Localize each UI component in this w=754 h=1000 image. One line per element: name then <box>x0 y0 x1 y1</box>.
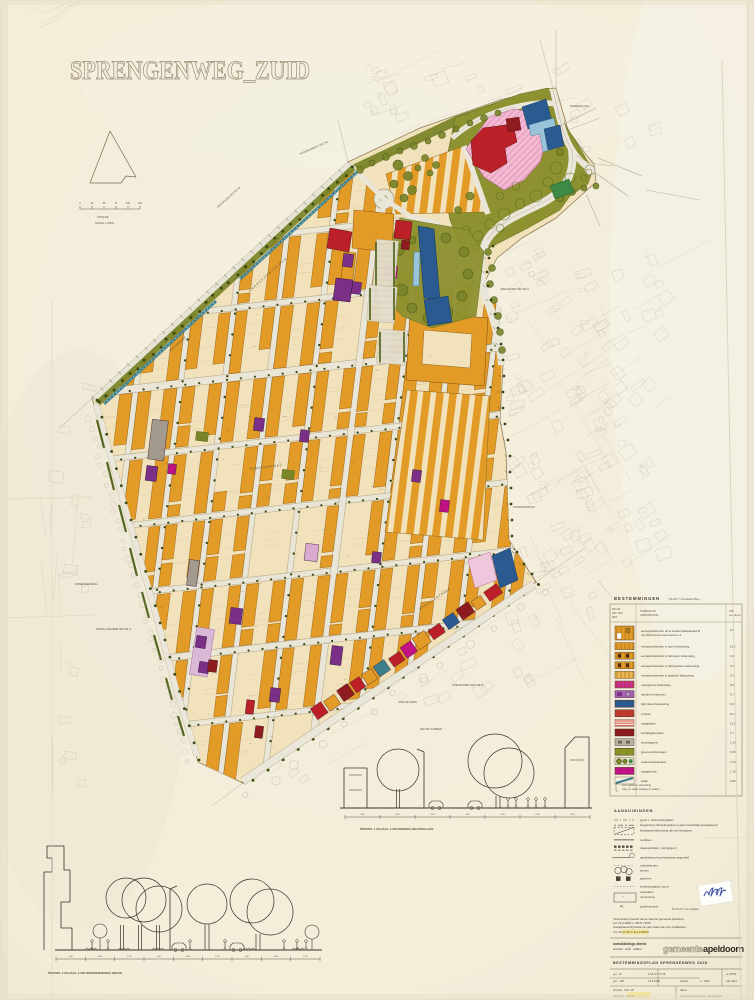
svg-text:SECTIE NUMMER: SECTIE NUMMER <box>420 727 442 731</box>
svg-text:SPRENGENWEG_ZUID: SPRENGENWEG_ZUID <box>70 56 310 85</box>
svg-text:0.46: 0.46 <box>730 779 736 783</box>
svg-text:eensgezinshuizen in half open: eensgezinshuizen in half open bebouwing <box>641 654 695 658</box>
svg-text:ORANJE PLEIN: ORANJE PLEIN <box>398 700 417 704</box>
svg-text:~: ~ <box>622 895 624 899</box>
svg-text:datum: datum <box>680 988 687 992</box>
svg-text:AANDUIDINGEN: AANDUIDINGEN <box>614 809 653 813</box>
svg-text:ZIE LID: ZIE LID <box>612 608 620 611</box>
svg-text:met bijbehorende aanbouwsels e: met bijbehorende aanbouwsels e.d. <box>641 633 682 637</box>
svg-text:WET: WET <box>612 616 618 619</box>
svg-text:*behorende bij besluit van de: *behorende bij besluit van de raad der g… <box>613 917 684 921</box>
svg-text:gez : vdB: gez : vdB <box>613 979 624 983</box>
svg-text:handel en kantoren: handel en kantoren <box>641 693 666 697</box>
svg-text:eensgezinshuizen in gesloten b: eensgezinshuizen in gesloten bebouwing <box>641 673 694 677</box>
svg-text:bijzondere bebouwing: bijzondere bebouwing <box>641 702 670 706</box>
svg-text:aansluiting nieuw-bestaand weg: aansluiting nieuw-bestaand wegprofiel <box>640 855 689 859</box>
svg-text:125: 125 <box>138 202 143 205</box>
svg-text:1 : 1250: 1 : 1250 <box>700 979 710 983</box>
svg-text:BESTEMMINGEN: BESTEMMINGEN <box>614 596 660 601</box>
svg-text:onderdoorgang / poort: onderdoorgang / poort <box>640 885 669 889</box>
svg-text:get : JK: get : JK <box>613 972 622 976</box>
svg-text:weg- en water aanleg ( in t: weg- en water aanleg ( in totaal ) <box>622 787 660 791</box>
svg-text:voetpaden: voetpaden <box>640 890 654 894</box>
svg-text:meergezins bebouwing: meergezins bebouwing <box>641 683 671 687</box>
svg-text:apeldoorn: apeldoorn <box>703 944 744 954</box>
svg-text:1.14: 1.14 <box>730 741 736 745</box>
svg-text:water: water <box>641 779 648 783</box>
svg-text:excl. gesloten verharding: excl. gesloten verharding <box>622 783 651 787</box>
svg-text:profielnummer: profielnummer <box>640 905 659 909</box>
svg-text:PROFIEL 2 SCHAAL 1:200: PROFIEL 2 SCHAAL 1:200 WORMENSEWEG NIEUW <box>48 971 122 975</box>
svg-text:SCHAAL 1:25000: SCHAAL 1:25000 <box>95 222 114 225</box>
svg-text:schaal: schaal <box>680 979 688 983</box>
svg-text:groenvoorzieningen: groenvoorzieningen <box>641 750 667 754</box>
svg-text:formaat : 125 x 95: formaat : 125 x 95 <box>613 988 634 992</box>
svg-text:OMSCHRIJVING: OMSCHRIJVING <box>640 614 658 617</box>
svg-text:KENNEDYLAAN: KENNEDYLAAN <box>570 104 589 108</box>
svg-text:eensgezinshuizen in half geslo: eensgezinshuizen in half gesloten bebouw… <box>641 664 700 668</box>
svg-text:magazijnen: magazijnen <box>641 721 656 725</box>
svg-text:nutsgebouw: nutsgebouw <box>641 769 658 773</box>
svg-text:ontwikkelings dienst: ontwikkelings dienst <box>613 942 647 946</box>
svg-text:SITUATIE: SITUATIE <box>97 215 109 219</box>
svg-text:bomen: bomen <box>640 869 649 873</box>
svg-text:100: 100 <box>126 202 131 205</box>
svg-text:PROFIEL 1 SCHAAL 1:200: PROFIEL 1 SCHAAL 1:200 PRINSES BEATRIXLA… <box>360 827 433 831</box>
svg-text:eensgezinshuizen in open bebou: eensgezinshuizen in open bebouwing <box>641 645 690 649</box>
svg-text:10.6: 10.6 <box>730 645 736 649</box>
svg-text:4.70: 4.70 <box>730 760 736 764</box>
svg-text:SYMBOOL EN: SYMBOOL EN <box>640 610 656 613</box>
svg-text:rooilijnen: rooilijnen <box>640 838 652 842</box>
svg-text:Goedgekeurd bij besluit van ge: Goedgekeurd bij besluit van ged. staten … <box>613 925 686 929</box>
svg-text:bestaande bebouwing die zal ve: bestaande bebouwing die zal verdwijnen <box>640 828 692 832</box>
svg-text:eensgezinshuizen uit te werken: eensgezinshuizen uit te werken klassebou… <box>641 629 700 633</box>
svg-text:nummering: nummering <box>640 895 655 899</box>
svg-text:wijz 4921: wijz 4921 <box>726 979 737 983</box>
svg-text:wnd dir : arch - stbkm: wnd dir : arch - stbkm <box>613 947 642 951</box>
svg-text:dwarsprofielen ( wijzigingen: dwarsprofielen ( wijzigingen ) <box>640 846 677 850</box>
svg-text:woonwagens: woonwagens <box>641 741 658 745</box>
svg-text:1.15: 1.15 <box>730 769 736 773</box>
svg-text:SPRENGENWEG: SPRENGENWEG <box>75 582 97 586</box>
svg-text:( 25-247 t: inhoudstuk Plan ): ( 25-247 t: inhoudstuk Plan ) <box>668 597 701 601</box>
svg-text:nr 25752: nr 25752 <box>726 972 737 976</box>
svg-text:parkeren: parkeren <box>640 877 652 881</box>
svg-text:scholen: scholen <box>641 712 651 716</box>
svg-text:APELDOORN SECTIE H: APELDOORN SECTIE H <box>500 287 529 291</box>
svg-text:8.5: 8.5 <box>730 683 734 687</box>
svg-text:FRANS HOEVERE SECTIE H: FRANS HOEVERE SECTIE H <box>96 627 131 631</box>
svg-text:8.7: 8.7 <box>730 693 734 697</box>
svg-text:KONINGSSTRAAT: KONINGSSTRAAT <box>513 505 535 509</box>
svg-text:2.7: 2.7 <box>730 731 734 735</box>
svg-text:BESTEMMINGSPLAN SPRENGENWEG: BESTEMMINGSPLAN SPRENGENWEG ZUID <box>613 961 708 965</box>
svg-text:HECTARES: HECTARES <box>729 614 741 617</box>
svg-text:15-8-'67 / 6-'68: 15-8-'67 / 6-'68 <box>648 972 666 976</box>
svg-text:23-9-1968: 23-9-1968 <box>648 979 660 983</box>
svg-text:ART. VAN: ART. VAN <box>612 612 623 615</box>
svg-text:grens v. bestemmingsplan: grens v. bestemmingsplan <box>640 818 674 822</box>
svg-text:APELDOORN SECTIE H: APELDOORN SECTIE H <box>452 683 483 687</box>
svg-text:begrenzing uitbreidingsplan in: begrenzing uitbreidingsplan in gave hoof… <box>640 823 718 827</box>
svg-text:verkeersdoeleinden: verkeersdoeleinden <box>641 760 667 764</box>
svg-text:8.1: 8.1 <box>730 673 734 677</box>
svg-text:d.d. 23-9-1968 nr.: d.d. 23-9-1968 nr. 25671 / 5078 <box>613 921 651 925</box>
svg-text:8.15: 8.15 <box>730 750 736 754</box>
svg-text:d.d. 10-12-'69 nr.: d.d. 10-12-'69 nr. E-4-1250/64 <box>613 930 649 934</box>
svg-text:bedrijfsgebouwen: bedrijfsgebouwen <box>641 731 664 735</box>
svg-text:gemeente: gemeente <box>663 944 703 954</box>
svg-text:m: m <box>612 856 614 859</box>
svg-text:trottoirbanden: trottoirbanden <box>640 863 658 867</box>
svg-text:P1 t/m P7 zie profielen: P1 t/m P7 zie profielen <box>672 907 700 911</box>
svg-text:P1: P1 <box>620 905 624 909</box>
